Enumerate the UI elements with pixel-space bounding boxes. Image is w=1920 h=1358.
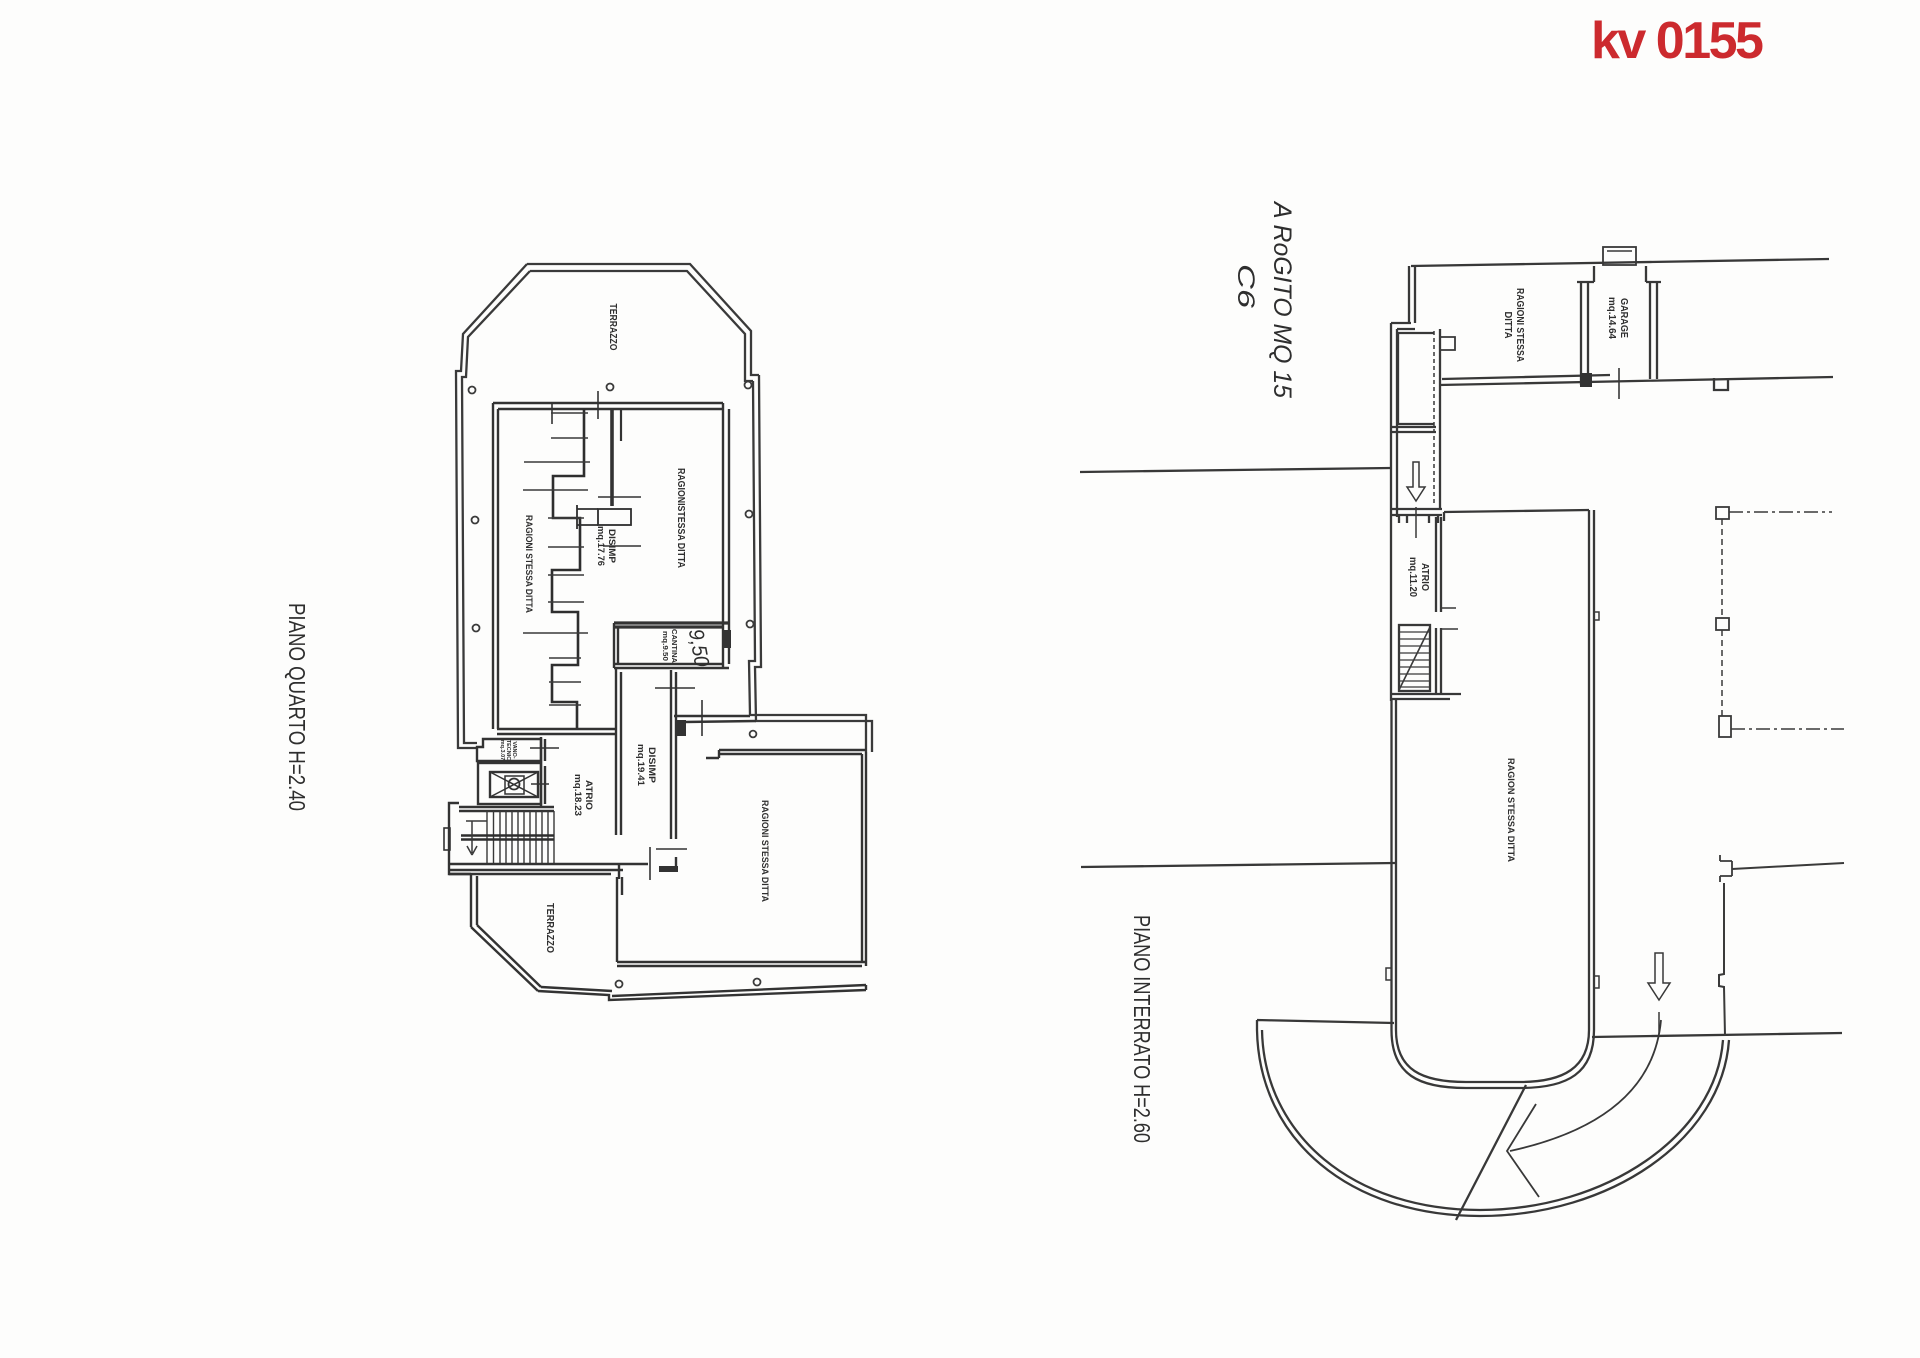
svg-text:mq.3.07: mq.3.07 bbox=[499, 740, 505, 760]
svg-text:TERRAZZO: TERRAZZO bbox=[607, 304, 619, 351]
svg-text:RAGIONI STESSA DITTA: RAGIONI STESSA DITTA bbox=[759, 800, 770, 902]
svg-text:A RoGITO MQ 15: A RoGITO MQ 15 bbox=[1268, 200, 1296, 398]
svg-text:mq.11.20: mq.11.20 bbox=[1407, 557, 1418, 597]
svg-text:GARAGE: GARAGE bbox=[1618, 298, 1629, 338]
svg-text:PIANO QUARTO H=2.40: PIANO QUARTO H=2.40 bbox=[284, 603, 310, 811]
svg-text:mq.19.41: mq.19.41 bbox=[635, 744, 646, 787]
svg-text:RAGIONISTESSA DITTA: RAGIONISTESSA DITTA bbox=[675, 468, 686, 568]
svg-text:ATRIO: ATRIO bbox=[1419, 563, 1430, 591]
svg-text:ATRIO: ATRIO bbox=[583, 780, 594, 810]
svg-text:C6: C6 bbox=[1232, 264, 1259, 309]
svg-text:RAGION STESSA DITTA: RAGION STESSA DITTA bbox=[1505, 758, 1516, 862]
svg-text:CANTINA: CANTINA bbox=[670, 629, 679, 664]
svg-text:kv 0155: kv 0155 bbox=[1591, 12, 1763, 70]
svg-text:DITTA: DITTA bbox=[1502, 312, 1513, 339]
svg-text:RAGIONI STESSA: RAGIONI STESSA bbox=[1514, 288, 1525, 362]
svg-text:PIANO INTERRATO H=2.60: PIANO INTERRATO H=2.60 bbox=[1129, 915, 1155, 1143]
svg-text:DISIMP: DISIMP bbox=[607, 529, 617, 563]
svg-text:mq.17.76: mq.17.76 bbox=[596, 526, 606, 566]
svg-text:RAGIONI STESSA DITTA: RAGIONI STESSA DITTA bbox=[523, 515, 534, 613]
svg-text:9,50: 9,50 bbox=[684, 627, 713, 669]
svg-text:mq.9.50: mq.9.50 bbox=[661, 631, 670, 661]
svg-text:mq.14.64: mq.14.64 bbox=[1606, 297, 1617, 339]
svg-text:mq.18.23: mq.18.23 bbox=[572, 774, 583, 816]
svg-text:DISIMP: DISIMP bbox=[646, 747, 657, 784]
svg-text:TERRAZZO: TERRAZZO bbox=[544, 903, 556, 953]
